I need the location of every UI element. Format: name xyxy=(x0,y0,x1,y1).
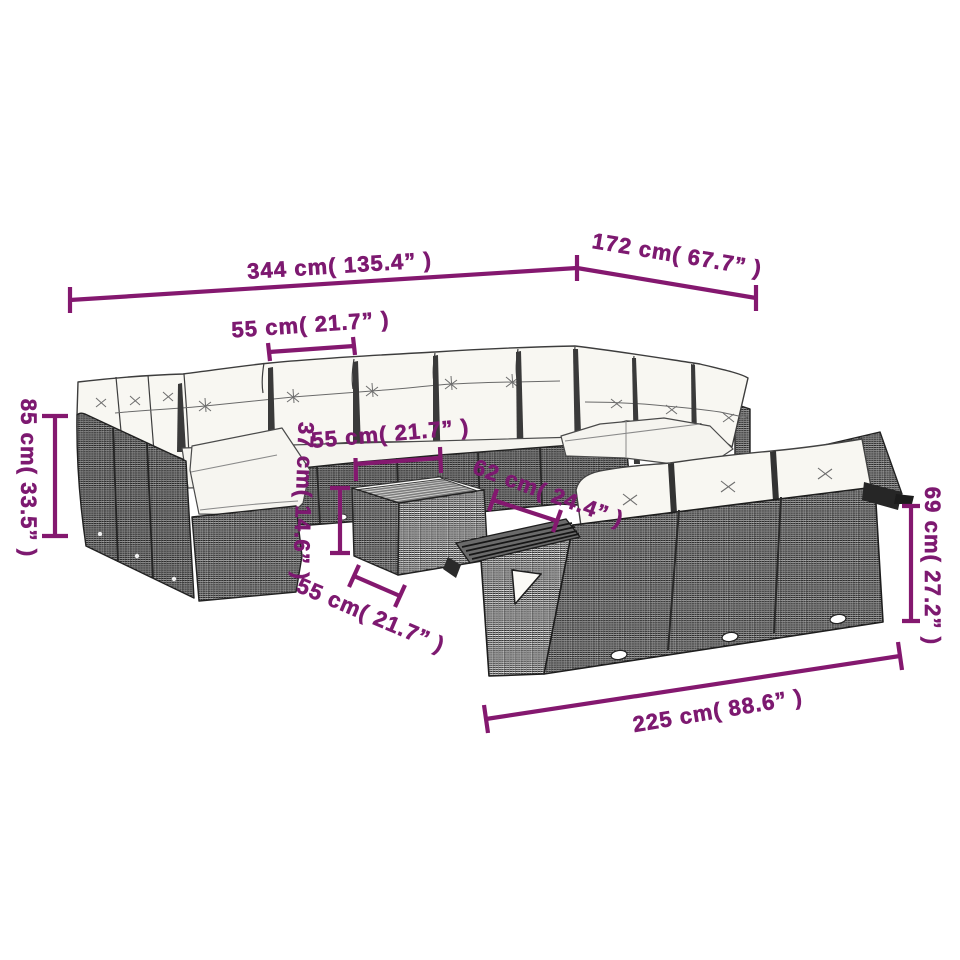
svg-text:69 cm( 27.2” ): 69 cm( 27.2” ) xyxy=(920,487,945,645)
svg-text:85 cm( 33.5” ): 85 cm( 33.5” ) xyxy=(16,399,41,557)
